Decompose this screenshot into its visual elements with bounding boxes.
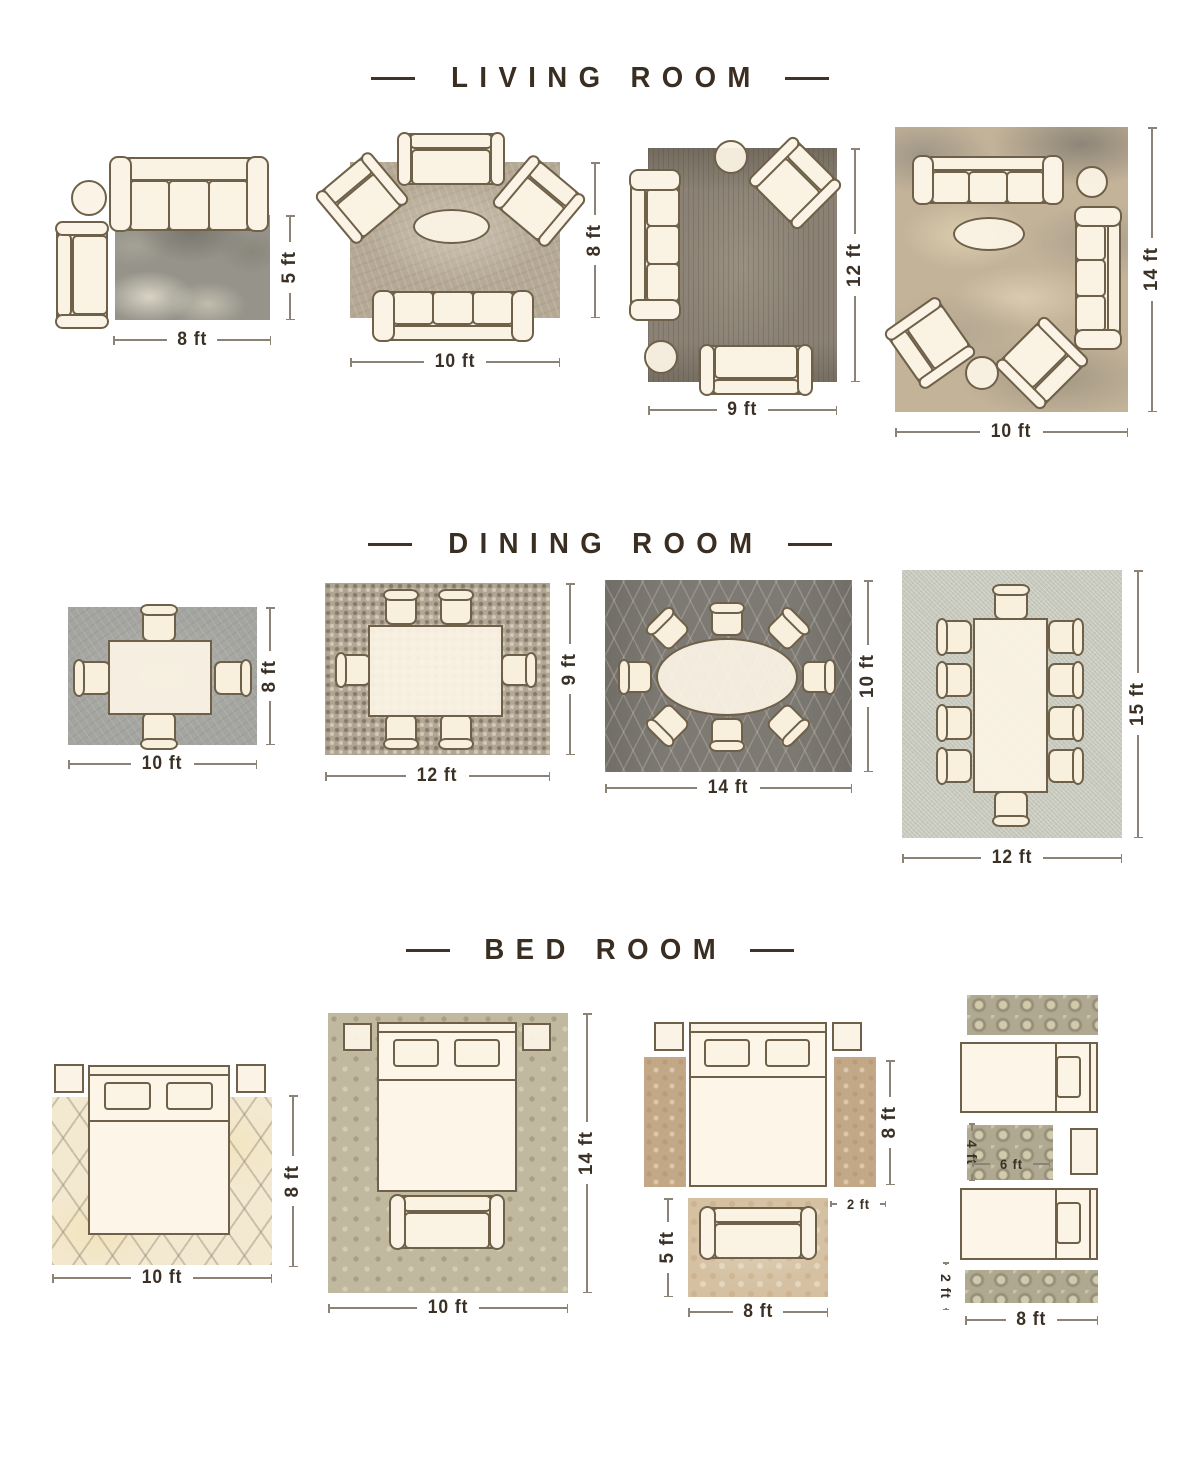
sofa-arm-right [489,1194,506,1250]
sofa-three-seat-vertical [630,170,680,320]
bed-queen [689,1022,827,1187]
dining-chair [802,661,830,693]
side-table-round [965,356,999,390]
dim-line [1057,1319,1097,1321]
title-dash-right [785,77,829,80]
sofa-cushion [129,180,170,231]
dimension-label: 5 ft [279,251,301,284]
dim-line [1151,129,1153,239]
dim-line [469,775,549,777]
dining-chair [711,608,743,636]
dimension-width: 9 ft [648,398,837,422]
sofa-three-seat [373,291,533,341]
dim-line [486,361,558,363]
dim-line [867,582,869,645]
dim-tick [1134,837,1143,839]
side-table-round [644,340,678,374]
dim-line [194,763,256,765]
sofa-cushion [646,225,680,264]
dim-line [269,701,271,743]
sofa-arm-right [490,132,505,186]
dining-chair [942,663,972,697]
dimension-height: 8 ft [283,1095,303,1267]
runner-rug-left [644,1057,686,1187]
dimension-width: 8 ft [965,1308,1098,1332]
sofa-cushion [646,188,680,227]
side-table-round [1076,166,1108,198]
sofa-arm-left [55,314,109,329]
dining-table [368,625,503,717]
dimension-label: 10 ft [435,351,476,373]
dim-tick [566,754,575,756]
dim-line [607,787,698,789]
bed-pillow [704,1039,750,1067]
dimension-width: 12 ft [325,764,550,788]
dim-line [586,1015,588,1122]
dim-tick [1148,411,1157,413]
title-dash-right [750,949,794,952]
dim-tick [1049,1161,1051,1167]
sofa-arm-left [511,290,534,342]
dim-line [832,1203,837,1205]
sofa-seat-cushions [1075,224,1106,332]
sofa-arm-right [629,169,681,191]
dim-tick [864,771,873,773]
sofa-cushion [1075,224,1106,261]
dim-line [586,1184,588,1291]
sofa-arm-left [699,1206,716,1260]
dining-chair [994,791,1028,821]
bed-cover-line [88,1120,230,1122]
dining-chair [440,714,472,744]
dimension-width: 10 ft [350,350,560,374]
dim-line [783,1311,826,1313]
sofa-arm-right [372,290,395,342]
coffee-table-oval [953,217,1025,251]
dim-tick [591,317,600,319]
nightstand [654,1022,684,1051]
dim-line [569,694,571,753]
dimension-width: 10 ft [328,1296,568,1320]
dim-line [897,431,981,433]
dimension-runner-width: 2 ft [830,1192,886,1216]
dimension-height: 5 ft [280,215,300,320]
dimension-width: 10 ft [895,420,1128,444]
dimension-label: 9 ft [728,399,758,421]
dimension-label: 8 ft [282,1165,304,1198]
sofa-arm-left [629,299,681,321]
bed-pillow [104,1082,151,1110]
dimension-label: 14 ft [576,1131,598,1175]
dimension-label: 6 ft [1000,1156,1023,1172]
dim-tick [583,1292,592,1294]
sofa-cushion [432,291,474,325]
dim-tick [1127,428,1129,437]
dim-tick [836,406,838,415]
dim-line [854,150,856,234]
dim-line [945,1264,947,1265]
dim-line [289,217,291,243]
bed-pillow [454,1039,500,1067]
sofa-three-seat-vertical [1075,207,1121,349]
sofa-seat-cushions [72,235,108,315]
dim-line [889,1062,891,1098]
rug-size-guide: LIVING ROOM 8 ft 5 ft 8 ft 10 ft 12 ft 9… [0,0,1200,1467]
dim-line [289,293,291,319]
dim-line [1151,301,1153,411]
sofa-cushion [404,1212,490,1249]
sofa-cushion [931,171,970,204]
sofa-cushion [72,235,108,315]
coffee-table-oval [413,209,490,244]
runner-rug-bottom [965,1270,1098,1303]
dining-chair [942,620,972,654]
bed-pillow [1056,1202,1081,1244]
sofa-backrest [1107,221,1121,334]
dim-line [974,1163,990,1165]
dimension-label: 10 ft [857,654,879,698]
dining-chair [994,590,1028,620]
dining-chair [624,661,652,693]
bed-headboard [377,1022,517,1033]
nightstand [54,1064,84,1093]
dim-line [193,1277,270,1279]
dimension-label: 9 ft [559,653,581,686]
dim-line [971,1125,973,1131]
sofa-seat-cushions [714,1223,801,1259]
dim-tick [256,760,258,769]
dim-tick [559,358,561,367]
dimension-label: 15 ft [1127,682,1149,726]
title-dash-right [788,543,832,546]
dining-table [973,618,1048,793]
loveseat-bottom [700,345,812,395]
section-dining-room-title: DINING ROOM [0,528,1200,561]
dim-line [269,609,271,651]
sofa-three-seat [110,157,268,231]
dim-tick [851,784,853,793]
runner-rug-top [967,995,1098,1035]
nightstand [522,1023,551,1051]
sofa-backrest [712,379,801,395]
dining-table [108,640,212,715]
dimension-label: 8 ft [177,329,207,351]
dim-line [667,1200,669,1223]
dining-chair [214,661,246,695]
dim-line [569,585,571,644]
dining-chair [142,610,176,642]
sofa-seat-cushions [714,345,798,379]
dim-line [70,763,132,765]
dim-line [115,339,167,341]
bed-headboard [1089,1188,1098,1260]
dim-tick [270,336,272,345]
bed-headboard [689,1022,827,1033]
dimension-label: 10 ft [142,753,183,775]
sofa-cushion [472,291,514,325]
dimension-height: 15 ft [1128,570,1148,838]
bench-foot-of-bed [390,1195,504,1249]
dim-line [1043,857,1120,859]
dimension-label: 12 ft [417,765,458,787]
sofa-cushion [968,171,1007,204]
dim-tick [271,1274,273,1283]
bed-cover-line [377,1079,517,1081]
dim-tick [549,772,551,781]
loveseat-vertical [56,222,108,328]
dim-tick [266,744,275,746]
dim-line [1043,431,1127,433]
sofa-cushion [646,263,680,302]
dimension-height: 10 ft [858,580,878,772]
section-title-text: LIVING ROOM [451,62,762,95]
dimension-label: 10 ft [991,421,1032,443]
nightstand [832,1022,862,1051]
sofa-cushion [168,180,209,231]
twin-bed [960,1188,1098,1260]
sofa-backrest [712,1207,804,1223]
dim-line [768,409,836,411]
dimension-label: 8 ft [1017,1309,1047,1331]
sofa-seat-cushions [129,180,249,231]
dim-tick [567,1304,569,1313]
sofa-seat-cushions [411,149,491,185]
side-table-round [714,140,748,174]
bed-pillow [393,1039,439,1067]
dim-line [667,1273,669,1296]
sofa-cushion [1075,295,1106,332]
dimension-label: 8 ft [879,1106,901,1139]
sofa-backrest [630,185,646,305]
dimension-label: 10 ft [142,1267,183,1289]
dim-tick [289,1266,298,1268]
dim-line [217,339,269,341]
dimension-label: 2 ft [847,1196,870,1212]
dimension-runner-length: 8 ft [880,1060,900,1185]
sofa-backrest [56,233,72,317]
dim-tick [886,1184,895,1186]
sofa-arm-right [1042,155,1064,205]
sofa-seat-cushions [931,171,1045,204]
sofa-seat-cushions [646,188,680,302]
dim-tick [827,1308,829,1317]
dimension-small-rug-width: 6 ft [972,1152,1050,1176]
dimension-width: 10 ft [52,1266,272,1290]
dimension-label: 12 ft [844,243,866,287]
dining-chair [1048,620,1078,654]
dim-line [479,1307,566,1309]
sofa-arm-left [912,155,934,205]
runner-rug-right [834,1057,876,1187]
sofa-arm-right [800,1206,817,1260]
dimension-label: 5 ft [657,1231,679,1264]
dim-tick [286,319,295,321]
dim-line [330,1307,417,1309]
title-dash-left [371,77,415,80]
dim-line [292,1206,294,1265]
dimension-label: 12 ft [992,847,1033,869]
dimension-accent-height: 5 ft [658,1198,678,1297]
sofa-cushion [392,291,434,325]
nightstand [236,1064,266,1093]
dim-tick [664,1296,673,1298]
dining-chair [79,661,111,695]
bed-headboard [1089,1042,1098,1113]
dimension-label: 2 ft [938,1274,954,1299]
dim-line [1033,1163,1049,1165]
section-living-room-title: LIVING ROOM [0,62,1200,95]
dimension-height: 8 ft [260,607,280,745]
dimension-label: 14 ft [1141,247,1163,291]
title-dash-left [368,543,412,546]
side-table-round [71,180,107,216]
dim-tick [1097,1316,1099,1325]
dim-line [594,164,596,215]
dining-chair [1048,706,1078,740]
sofa-backrest [928,156,1048,171]
sofa-cushion [1075,259,1106,296]
title-dash-left [406,949,450,952]
sofa-backrest [126,157,252,181]
dim-line [327,775,407,777]
sofa-backrest [389,325,517,341]
dim-tick [851,381,860,383]
dim-tick [885,1201,887,1207]
loveseat-top [398,133,504,185]
dimension-accent-width: 8 ft [688,1300,828,1324]
twin-bed [960,1042,1098,1113]
section-bed-room-title: BED ROOM [0,934,1200,967]
dining-chair [711,718,743,746]
sofa-arm-left [389,1194,406,1250]
dimension-runner-width: 2 ft [936,1262,956,1310]
dim-line [54,1277,131,1279]
dimension-width: 8 ft [113,328,271,352]
nightstand [1070,1128,1098,1175]
sofa-arm-left [109,156,132,232]
nightstand [343,1023,372,1051]
sofa-seat-cushions [392,291,514,325]
sofa-backrest [402,1195,492,1212]
bed-pillow [1056,1056,1081,1098]
dining-chair [1048,663,1078,697]
dimension-height: 9 ft [560,583,580,755]
dining-chair [440,595,472,625]
dimension-label: 8 ft [259,660,281,693]
dim-line [904,857,981,859]
sofa-arm-right [246,156,269,232]
dim-line [292,1097,294,1156]
sofa-cushion [1006,171,1045,204]
sofa-three-seat [913,156,1063,204]
dimension-height: 12 ft [845,148,865,382]
dim-line [352,361,424,363]
bed-queen [88,1065,230,1235]
dimension-height: 14 ft [577,1013,597,1293]
sofa-backrest [409,133,493,149]
bed-queen [377,1022,517,1192]
dimension-label: 14 ft [708,777,749,799]
dining-chair [1048,749,1078,783]
section-title-text: BED ROOM [485,934,728,967]
dining-chair [142,712,176,744]
dimension-width: 14 ft [605,776,852,800]
dim-line [1137,572,1139,673]
dining-chair [385,595,417,625]
sofa-arm-right [699,344,715,396]
bed-pillow [765,1039,811,1067]
dim-line [967,1319,1007,1321]
dim-line [854,296,856,380]
sofa-cushion [411,149,491,185]
dim-line [594,265,596,316]
section-title-text: DINING ROOM [448,528,763,561]
sofa-cushion [714,345,798,379]
sofa-arm-left [1074,206,1122,227]
sofa-arm-left [397,132,412,186]
dim-line [889,1148,891,1184]
sofa-arm-left [797,344,813,396]
dim-line [1137,735,1139,836]
bed-pillow [166,1082,213,1110]
dimension-height: 14 ft [1142,127,1162,412]
dining-chair [942,706,972,740]
dimension-label: 10 ft [428,1297,469,1319]
dim-tick [969,1180,975,1182]
dining-chair [501,654,531,686]
dining-table-oval [656,638,798,716]
dim-line [760,787,851,789]
dimension-label: 8 ft [584,224,606,257]
dimension-height: 8 ft [585,162,605,318]
sofa-cushion [714,1223,801,1259]
dim-tick [943,1309,949,1311]
dining-chair [341,654,371,686]
dining-chair [942,749,972,783]
sofa-arm-right [55,221,109,236]
sofa-arm-right [1074,329,1122,350]
sofa-seat-cushions [404,1212,490,1249]
dim-tick [1121,854,1123,863]
dining-chair [385,714,417,744]
sofa-cushion [208,180,249,231]
dim-line [867,707,869,770]
loveseat-on-accent-rug [700,1207,816,1259]
dimension-label: 8 ft [743,1301,773,1323]
dimension-width: 12 ft [902,846,1122,870]
bed-cover-line [689,1076,827,1078]
bed-headboard [88,1065,230,1076]
dim-line [690,1311,733,1313]
dimension-width: 10 ft [68,752,257,776]
dim-line [650,409,718,411]
